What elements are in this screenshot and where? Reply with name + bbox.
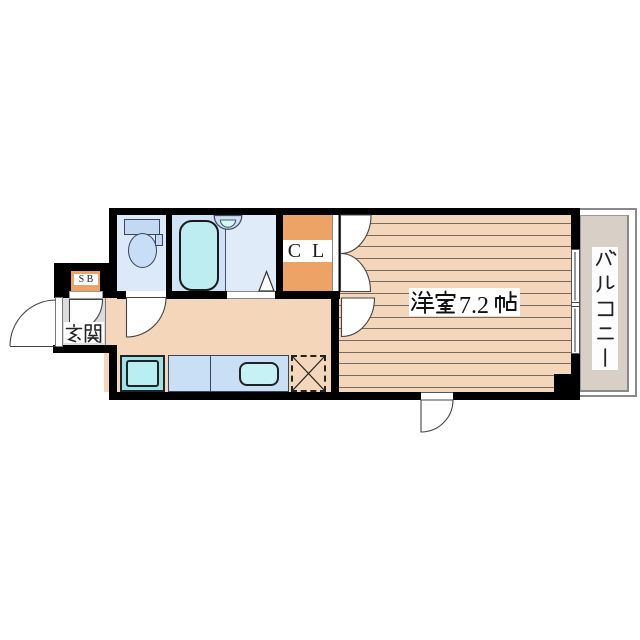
svg-text:7.2: 7.2 xyxy=(459,293,489,319)
